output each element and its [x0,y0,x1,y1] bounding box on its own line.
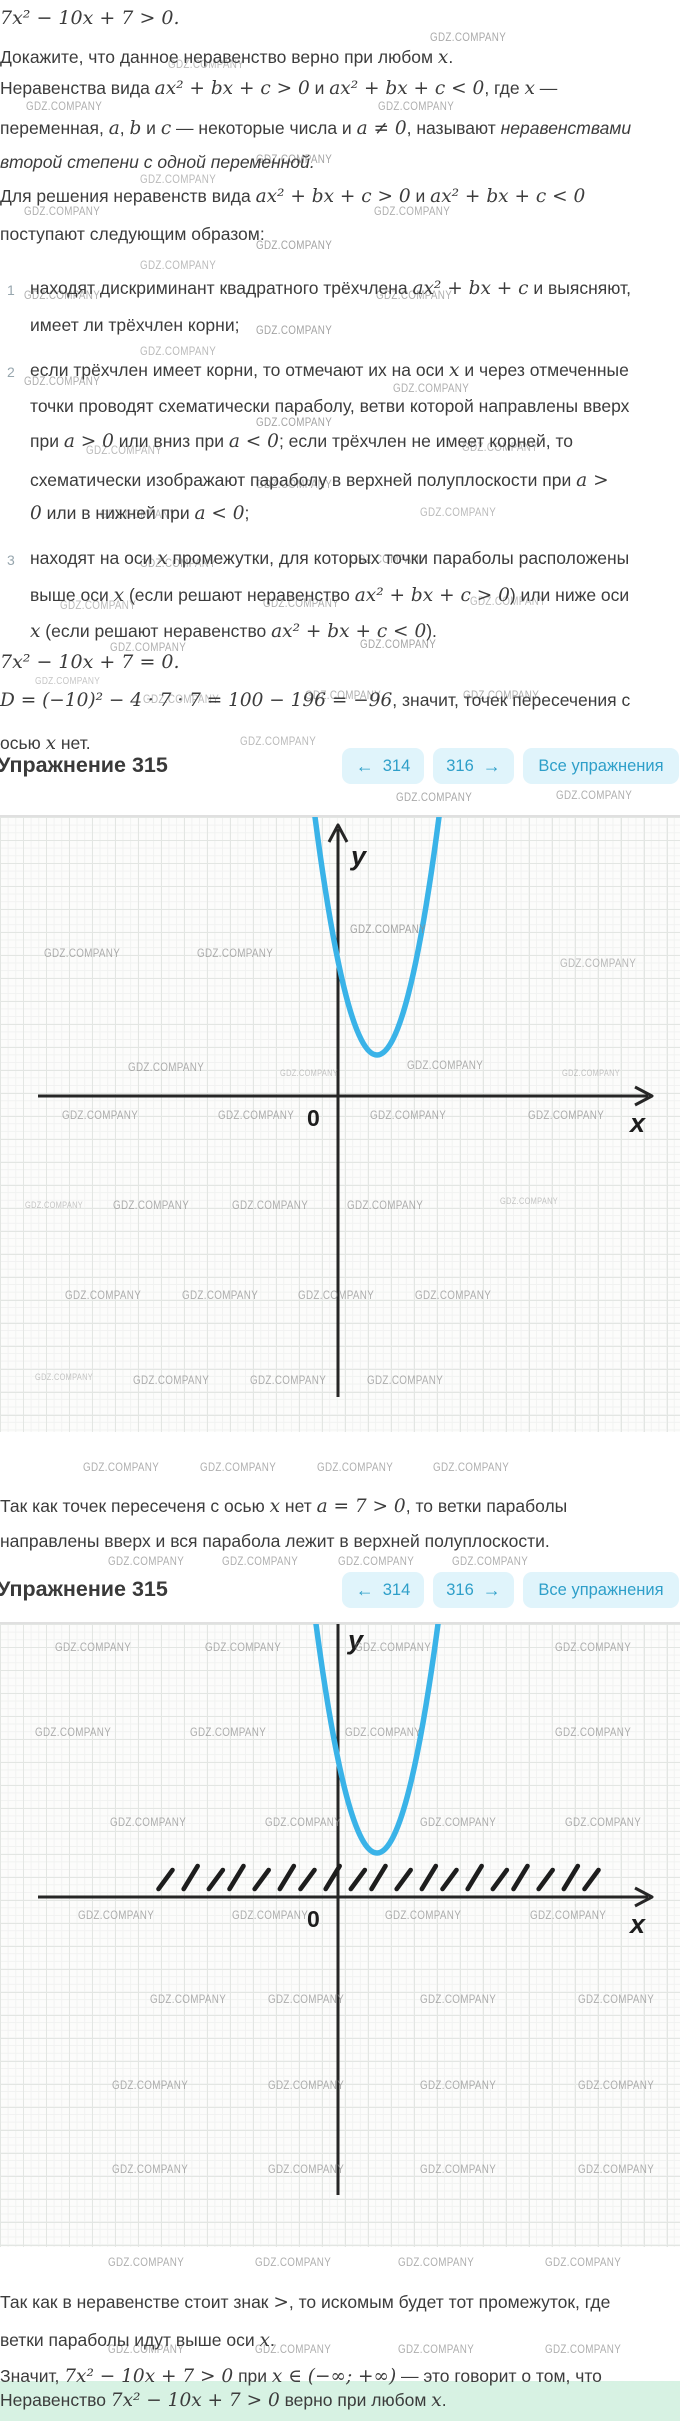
watermark: GDZ.COMPANY [108,2255,184,2269]
list-number: 3 [7,550,15,571]
all-exercises-button[interactable]: Все упражнения [523,748,679,784]
watermark: GDZ.COMPANY [140,344,216,358]
prev-exercise-label: 314 [383,1581,411,1600]
text-line: второй степени с одной переменной. [0,152,315,173]
watermark: GDZ.COMPANY [398,2342,474,2356]
prev-exercise-button[interactable]: ← 314 [342,1572,424,1608]
watermark: GDZ.COMPANY [393,381,469,395]
watermark: GDZ.COMPANY [256,415,332,429]
text-line: Так как в неравенстве стоит знак >, то и… [0,2292,610,2313]
arrow-right-icon: → [483,1581,501,1599]
watermark: GDZ.COMPANY [256,238,332,252]
text-line: схематически изображают параболу в верхн… [30,470,609,491]
text-line: выше оси x (если решают неравенство ax² … [30,585,629,606]
watermark: GDZ.COMPANY [556,788,632,802]
watermark: GDZ.COMPANY [545,2255,621,2269]
watermark: GDZ.COMPANY [35,676,100,687]
graph-svg [0,817,680,1432]
x-axis-label: x [630,1108,645,1139]
text-line: Докажите, что данное неравенство верно п… [0,47,453,68]
watermark: GDZ.COMPANY [420,505,496,519]
next-exercise-button[interactable]: 316 → [433,748,514,784]
all-exercises-label: Все упражнения [538,757,663,776]
watermark: GDZ.COMPANY [433,1460,509,1474]
text-line: Неравенство 7x² − 10x + 7 > 0 верно при … [0,2390,447,2411]
list-number: 1 [7,280,15,301]
exercise-header: Упражнение 315 ← 314 316 → Все упражнени… [0,1572,680,1612]
prev-exercise-button[interactable]: ← 314 [342,748,424,784]
watermark: GDZ.COMPANY [140,258,216,272]
next-exercise-label: 316 [446,1581,474,1600]
text-line: ветки параболы идут выше оси x. [0,2330,275,2351]
watermark: GDZ.COMPANY [240,734,316,748]
origin-label: 0 [307,1906,320,1933]
text-line: направлены вверх и вся парабола лежит в … [0,1531,550,1552]
parabola-graph-1: y x 0 [0,815,680,1432]
text-line: Значит, 7x² − 10x + 7 > 0 при x ∈ (−∞; +… [0,2366,602,2387]
text-line: переменная, a, b и c — некоторые числа и… [0,118,631,139]
arrow-left-icon: ← [356,1581,374,1599]
next-exercise-button[interactable]: 316 → [433,1572,514,1608]
y-axis-label: y [348,1625,363,1656]
watermark: GDZ.COMPANY [200,1460,276,1474]
y-axis-label: y [351,841,366,872]
watermark: GDZ.COMPANY [398,2255,474,2269]
watermark: GDZ.COMPANY [222,1554,298,1568]
text-line: 3находят на оси x промежутки, для которы… [30,548,629,569]
all-exercises-label: Все упражнения [538,1581,663,1600]
all-exercises-button[interactable]: Все упражнения [523,1572,679,1608]
watermark: GDZ.COMPANY [83,1460,159,1474]
page-title: Упражнение 315 [0,1577,168,1602]
text-line: 2если трёхчлен имеет корни, то отмечают … [30,360,629,381]
text-line: 0 или в нижней при a < 0; [30,503,249,524]
text-line: Так как точек пересеченя с осью x нет a … [0,1496,567,1517]
watermark: GDZ.COMPANY [338,1554,414,1568]
next-exercise-label: 316 [446,757,474,776]
watermark: GDZ.COMPANY [317,1460,393,1474]
text-line: Для решения неравенств вида ax² + bx + c… [0,186,585,207]
text-line: 7x² − 10x + 7 > 0. [0,8,180,29]
watermark: GDZ.COMPANY [545,2342,621,2356]
graph-svg [0,1624,680,2247]
watermark: GDZ.COMPANY [256,323,332,337]
watermark: GDZ.COMPANY [255,2255,331,2269]
watermark: GDZ.COMPANY [452,1554,528,1568]
watermark: GDZ.COMPANY [430,30,506,44]
watermark: GDZ.COMPANY [26,99,102,113]
text-line: при a > 0 или вниз при a < 0; если трёхч… [30,431,573,452]
arrow-right-icon: → [483,757,501,775]
text-line: D = (−10)² − 4 · 7 · 7 = 100 − 196 = −96… [0,690,630,711]
watermark: GDZ.COMPANY [396,790,472,804]
text-line: поступают следующим образом: [0,224,265,245]
list-number: 2 [7,362,15,383]
parabola-graph-2: y x 0 [0,1622,680,2247]
exercise-header: Упражнение 315 ← 314 316 → Все упражнени… [0,748,680,788]
prev-exercise-label: 314 [383,757,411,776]
text-line: 1находят дискриминант квадратного трёхчл… [30,278,631,299]
watermark: GDZ.COMPANY [140,172,216,186]
text-line: Неравенства вида ax² + bx + c > 0 и ax² … [0,78,557,99]
text-line: имеет ли трёхчлен корни; [30,315,239,336]
watermark: GDZ.COMPANY [378,99,454,113]
text-line: точки проводят схематически параболу, ве… [30,396,629,417]
page-title: Упражнение 315 [0,753,168,778]
x-axis-label: x [630,1909,645,1940]
text-line: 7x² − 10x + 7 = 0. [0,652,180,673]
text-line: x (если решают неравенство ax² + bx + c … [30,621,437,642]
arrow-left-icon: ← [356,757,374,775]
origin-label: 0 [307,1105,320,1132]
page: 7x² − 10x + 7 > 0.Докажите, что данное н… [0,0,680,2421]
watermark: GDZ.COMPANY [108,1554,184,1568]
